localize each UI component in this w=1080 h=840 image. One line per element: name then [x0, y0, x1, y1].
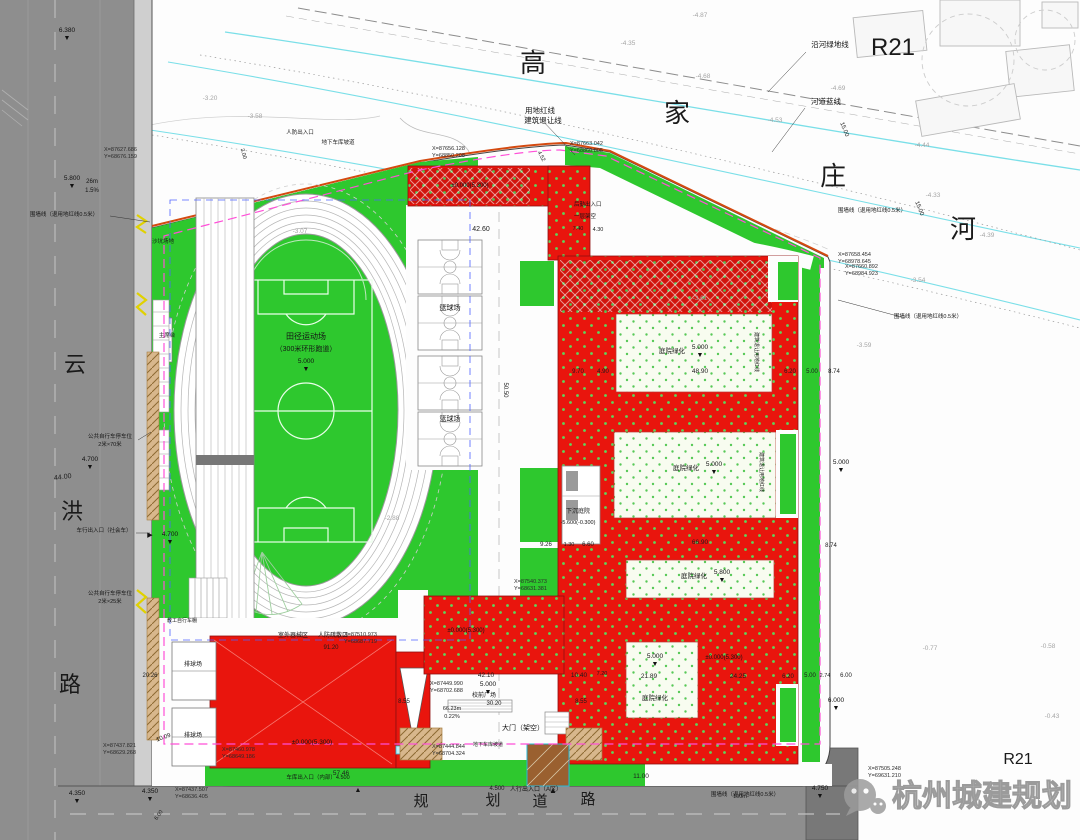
coordinate-label: X=87449.990 [430, 681, 463, 687]
dimension-label: 9.70 [572, 369, 584, 375]
label-redline: 用地红线 [525, 105, 555, 115]
public-bike-parking [147, 598, 159, 740]
sunken-courtyard-block [562, 466, 600, 544]
dimension-label: 8.74 [825, 543, 837, 549]
coordinate-label: Y=68984.923 [845, 271, 878, 277]
coordinate-label: X=87540.373 [514, 579, 547, 585]
label-fence-line: 围墙线（退用地红线0.5米） [838, 206, 906, 214]
public-bike-parking [147, 352, 159, 520]
coordinate-label: X=87660.892 [845, 264, 878, 270]
dimension-label: 5.00 [804, 673, 816, 679]
map-label: 一层架空 [574, 212, 597, 220]
dimension-label: 7.40 [573, 226, 584, 232]
coordinate-label: Y=69631.210 [868, 773, 901, 779]
coordinate-label: Y=68850.208 [432, 153, 465, 159]
survey-elevation: -3.59 [857, 342, 872, 349]
elevation-value: 5.800 [714, 569, 731, 576]
sprint-straight [196, 198, 254, 622]
south-road-name-char: 划 [485, 792, 500, 809]
river-name-char: 河 [950, 214, 976, 244]
elevation-marker: ▼ [711, 469, 718, 476]
dimension-label: 100m [733, 794, 747, 800]
elevation-marker: ▼ [833, 705, 840, 712]
map-label: （300米环形跑道） [276, 344, 337, 353]
map-label: 后勤出入口 [574, 200, 602, 208]
coordinate-label: X=87437.507 [175, 787, 208, 793]
dimension-label: 5.00 [806, 369, 818, 375]
coordinate-label: X=87505.248 [868, 766, 901, 772]
map-label: 教工自行车棚 [167, 617, 197, 624]
elevation-marker: ▼ [652, 661, 659, 668]
label-fence-line: 围墙线（退用地红线0.5米） [30, 210, 98, 218]
dimension-label: 66.23m [443, 706, 462, 712]
survey-elevation: -4.35 [621, 40, 636, 47]
elevation-value: 4.700 [162, 531, 179, 538]
courtyard-1 [616, 314, 772, 392]
elevation-value: 4.350 [142, 788, 159, 795]
dimension-label: 8.55 [398, 699, 410, 705]
coordinate-label: Y=68629.268 [103, 750, 136, 756]
dimension-label: 6.00 [840, 673, 852, 679]
map-label: 2米×25米 [98, 597, 122, 605]
watermark-text: 杭州城建规划 [892, 779, 1072, 813]
dimension-label: 8.74 [828, 369, 840, 375]
site-plan-drawing: 高 家 庄 河 云 洪 路 规 划 道 路 R21 R21 杭州城建规划 用地红… [0, 0, 1080, 840]
coordinate-label: X=87444.844 [432, 744, 465, 750]
dimension-label: 4.90 [597, 369, 609, 375]
label-courtyard-green: 庭院绿化 [659, 346, 686, 355]
coordinate-label: X=87437.821 [103, 743, 136, 749]
elevation-marker: ▼ [485, 689, 492, 696]
elevation-value: 6.000 [828, 697, 845, 704]
site-plan-screenshot: 高 家 庄 河 云 洪 路 规 划 道 路 R21 R21 杭州城建规划 用地红… [0, 0, 1080, 840]
map-label: ▲ [355, 787, 362, 794]
coordinate-label: Y=68704.324 [432, 751, 465, 757]
map-label: 车行出入口（社会车） [76, 526, 131, 534]
map-label: 室外器械区 [278, 631, 308, 639]
elevation-value: 5.000 [706, 461, 723, 468]
elevation-value: 5.000 [480, 681, 497, 688]
dimension-label: 4.30 [593, 227, 604, 233]
elevation-marker: ▼ [147, 796, 154, 803]
coordinate-label: Y=68636.405 [175, 794, 208, 800]
coordinate-label: Y=68860.805 [570, 148, 603, 154]
survey-elevation: -0.43 [1045, 713, 1060, 720]
survey-elevation: -4.87 [693, 12, 708, 19]
dimension-label: 24.25 [730, 673, 747, 680]
survey-elevation: -3.54 [911, 277, 926, 284]
map-label: -5.600(-0.300) [561, 520, 596, 526]
dimension-label: 0.22% [444, 714, 460, 720]
coordinate-label: Y=68631.381 [514, 586, 547, 592]
survey-elevation: -4.69 [831, 85, 846, 92]
map-label: 地下车库坡道 [321, 138, 355, 146]
courtyard-2 [614, 432, 776, 518]
map-label: ±0.000(5.300) [447, 628, 484, 634]
dimension-label: 9.26 [540, 542, 552, 548]
label-sandpit: 沙坑场地 [152, 237, 175, 245]
west-road [0, 0, 152, 840]
dimension-label: 6.20 [782, 674, 794, 680]
elevation-value: 5.000 [298, 358, 315, 365]
survey-elevation: -3.61 [693, 295, 708, 302]
survey-elevation: -4.39 [980, 232, 995, 239]
label-basketball: 篮球场 [440, 303, 461, 312]
elevation-value: 6.380 [59, 27, 76, 34]
dimension-label: 8.55 [575, 699, 587, 705]
west-road-name-char: 洪 [61, 499, 83, 524]
dimension-label: 6.20 [784, 369, 796, 375]
map-label: 1.5% [85, 188, 99, 194]
map-label: 建筑退让用地红线 [753, 332, 760, 372]
dimension-label: 50.50 [502, 382, 508, 398]
coordinate-label: Y=68676.159 [104, 154, 137, 160]
label-courtyard-green: 庭院绿化 [681, 571, 708, 580]
label-rostrum: 主席台 [159, 331, 176, 339]
elevation-value: 5.000 [833, 459, 850, 466]
survey-elevation: -4.68 [696, 73, 711, 80]
dimension-label: 57.46 [333, 770, 350, 777]
dimension-label: 10.40 [571, 672, 588, 679]
dimension-label: 48.90 [692, 368, 709, 375]
west-road-name-char: 云 [64, 352, 86, 377]
coordinate-label: Y=68649.186 [222, 754, 255, 760]
map-label: ±0.000(5.300) [451, 183, 488, 189]
link-wing [548, 166, 590, 260]
elevation-value: 4.750 [812, 785, 829, 792]
label-volleyball: 排球场 [184, 660, 202, 668]
map-label: 2米×70米 [98, 440, 122, 448]
dimension-label: 66.90 [692, 539, 709, 546]
river-name-char: 高 [520, 48, 546, 78]
label-courtyard-green: 庭院绿化 [642, 693, 669, 702]
river-name-char: 家 [664, 98, 690, 128]
elevation-marker: ▼ [74, 798, 81, 805]
coordinate-label: Y=68687.719 [344, 639, 377, 645]
coordinate-label: Y=68702.688 [430, 688, 463, 694]
coordinate-label: X=87656.128 [432, 146, 465, 152]
label-courtyard-green: 庭院绿化 [673, 463, 700, 472]
dimension-label: 30.20 [486, 701, 502, 707]
elevation-value: 5.000 [692, 344, 709, 351]
map-label: ▲ [549, 786, 557, 795]
elevation-marker: ▼ [719, 577, 726, 584]
map-label: ±0.000(5.300) [292, 739, 332, 746]
label-river-blue-line: 河道蓝线 [811, 96, 841, 106]
elevation-marker: ▼ [303, 366, 310, 373]
coordinate-label: X=87460.978 [222, 747, 255, 753]
elevation-value: 5.000 [647, 653, 664, 660]
label-setback-line: 建筑退让线 [524, 115, 562, 125]
south-road-name-char: 规 [413, 793, 428, 810]
coordinate-label: X=87510.973 [344, 632, 377, 638]
survey-elevation: -3.58 [248, 113, 263, 120]
map-label: ±0.000(5.300) [705, 655, 742, 661]
elevation-marker: ▼ [64, 35, 71, 42]
elevation-value: 4.700 [82, 456, 99, 463]
label-fence-line: 围墙线（退用地红线0.5米） [894, 312, 962, 320]
elevation-value: 5.800 [64, 175, 81, 182]
dimension-label: 42.10 [478, 672, 495, 679]
map-label: ▶ [147, 532, 153, 539]
elevation-value: 4.350 [69, 790, 86, 797]
zone-label-r21: R21 [1003, 751, 1032, 768]
survey-elevation: -4.44 [915, 142, 930, 149]
survey-elevation: -0.58 [1041, 643, 1056, 650]
west-road-name-char: 路 [59, 672, 81, 697]
elevation-marker: ▼ [697, 352, 704, 359]
survey-elevation: -2.88 [385, 515, 400, 522]
label-main-gate: 大门（架空） [502, 723, 544, 732]
label-athletics-field: 田径运动场 [286, 331, 326, 341]
survey-elevation: -3.07 [293, 228, 308, 235]
map-label: 公共自行车停车位 [88, 432, 133, 440]
dimension-label: 20.26 [142, 673, 158, 679]
survey-elevation: -3.20 [203, 95, 218, 102]
river-name-char: 庄 [820, 161, 846, 191]
label-river-green-line: 沿河绿地线 [811, 39, 849, 49]
south-road-name-char: 道 [532, 793, 547, 810]
coordinate-label: X=87663.042 [570, 141, 603, 147]
map-label: 地下车库坡道 [473, 741, 503, 748]
dimension-label: 91.20 [323, 645, 339, 651]
dimension-label: 21.89 [641, 673, 658, 680]
lecture-hall [424, 596, 564, 674]
elevation-marker: ▼ [817, 793, 824, 800]
dimension-label: 4.500 [489, 786, 505, 792]
label-volleyball: 排球场 [184, 731, 202, 739]
elevation-marker: ▼ [167, 539, 174, 546]
dimension-label: 11.00 [633, 773, 649, 780]
dimension-label: 2.74 [820, 673, 831, 679]
map-label: 26m [86, 179, 98, 185]
zone-label-r21: R21 [871, 34, 915, 61]
map-label: 人防出入口 [286, 128, 314, 136]
elevation-marker: ▼ [87, 464, 94, 471]
survey-elevation: -0.77 [923, 645, 938, 652]
dimension-label: 6.60 [582, 542, 594, 548]
coordinate-label: X=87658.454 [838, 252, 871, 258]
dimension-label: 42.60 [472, 226, 490, 233]
map-label: 公共自行车停车位 [88, 589, 133, 597]
map-label: 建筑退让用地红线 [758, 452, 765, 492]
survey-elevation: -4.53 [768, 117, 783, 124]
elevation-marker: ▼ [838, 467, 845, 474]
label-basketball: 篮球场 [440, 414, 461, 423]
coordinate-label: X=87627.686 [104, 147, 137, 153]
dimension-label: 7.20 [597, 671, 608, 677]
elevation-marker: ▼ [69, 183, 76, 190]
dimension-label: 1.30 [564, 542, 575, 548]
survey-elevation: -4.33 [926, 192, 941, 199]
south-road-name-char: 路 [580, 791, 595, 808]
label-sunken-courtyard: 下沉庭院 [566, 507, 590, 515]
